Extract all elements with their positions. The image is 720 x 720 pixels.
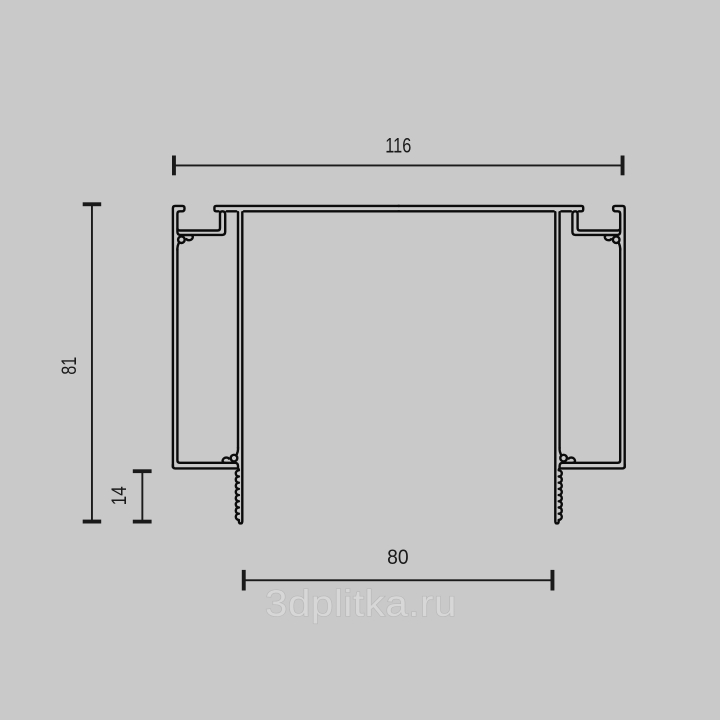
- svg-text:81: 81: [57, 357, 81, 375]
- svg-text:80: 80: [387, 545, 409, 569]
- svg-text:116: 116: [385, 133, 411, 157]
- svg-text:3dplitka.ru: 3dplitka.ru: [265, 583, 457, 624]
- svg-text:14: 14: [107, 486, 131, 505]
